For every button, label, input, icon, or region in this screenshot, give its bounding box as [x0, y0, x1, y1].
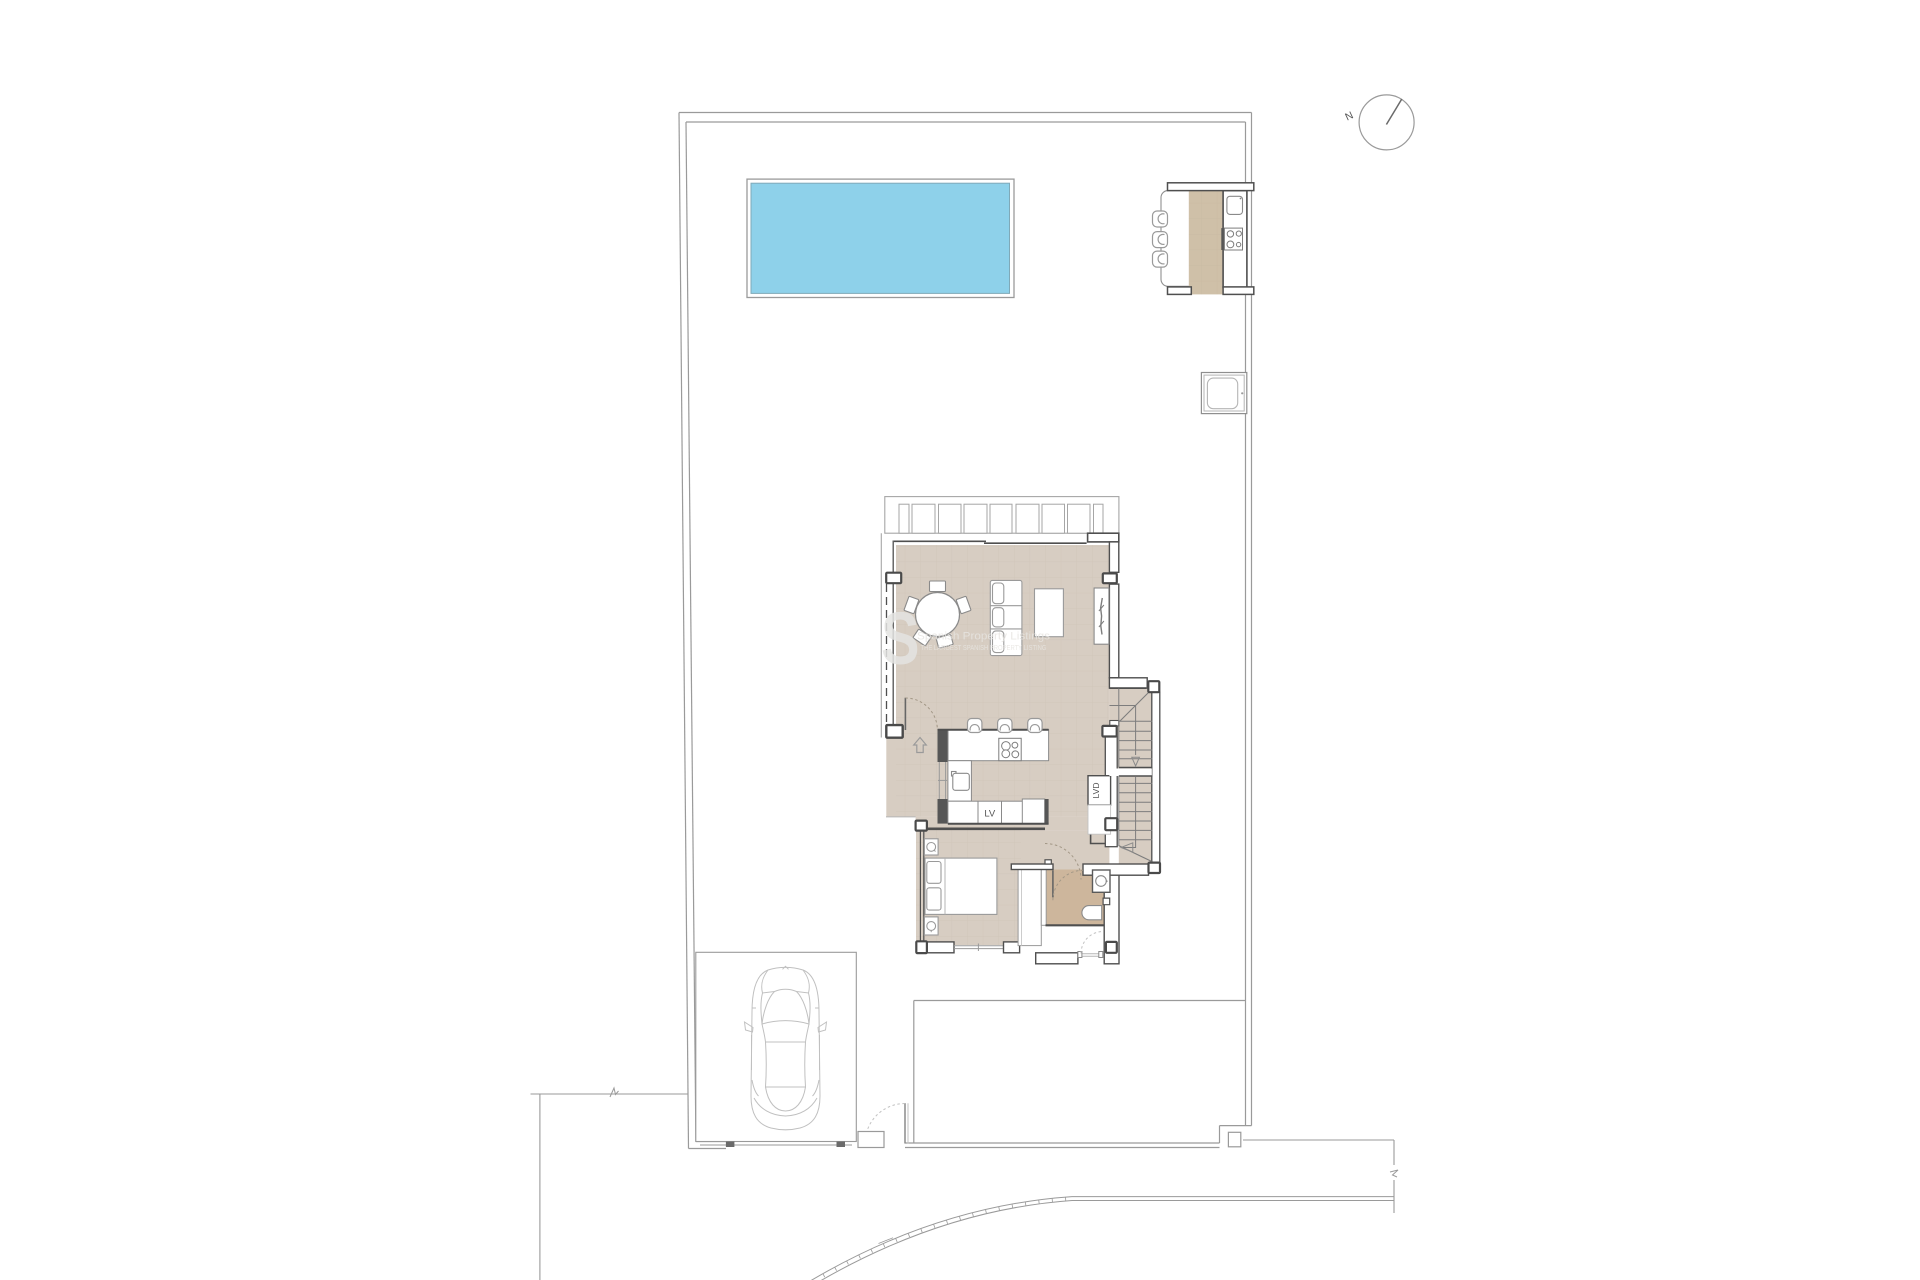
svg-text:S: S: [881, 598, 920, 681]
svg-text:THE LARGEST SPANISH PROPERTY L: THE LARGEST SPANISH PROPERTY LISTING: [921, 643, 1047, 652]
svg-text:Spanish Property Listings: Spanish Property Listings: [917, 631, 1051, 643]
svg-text:LV: LV: [984, 809, 996, 820]
svg-text:LVD: LVD: [1091, 783, 1101, 799]
